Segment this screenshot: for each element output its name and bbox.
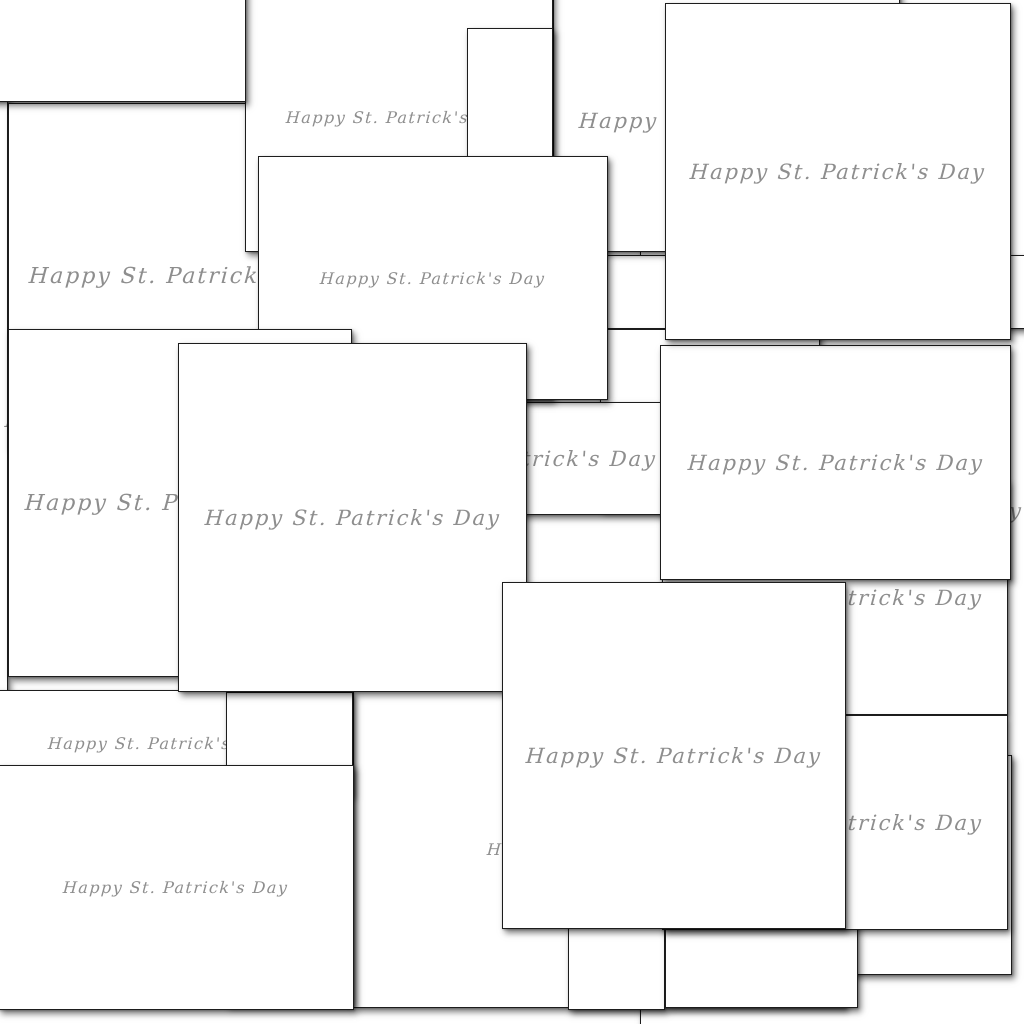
card-greeting-text: Happy St. Patrick's Day	[687, 451, 984, 475]
card-greeting-text: Happy St. Patrick's Day	[689, 160, 986, 184]
card-greeting-text: Happy St. Patrick's Day	[204, 506, 501, 530]
card-greeting-text: Happy St. Patrick's Day	[525, 744, 822, 768]
greeting-card-big-center: Happy St. Patrick's Day	[178, 343, 527, 692]
card-greeting-text: Happy St. Patrick's Day	[0, 408, 8, 432]
greeting-card-bottom-left: Happy St. Patrick's Day	[0, 765, 354, 1010]
greeting-card-bottom-center: Happy St. Patrick's Day	[502, 582, 846, 929]
card-greeting-text: Happy St. Patrick's Day	[320, 269, 547, 288]
greeting-card-filler-left: Happy St. Patrick's Day	[0, 60, 8, 780]
card-collage: Happy St. Patrick's DayHappy St. Patrick…	[0, 0, 1024, 1024]
greeting-card-center-right: Happy St. Patrick's Day	[660, 345, 1011, 580]
greeting-card-top-right: Happy St. Patrick's Day	[665, 3, 1011, 340]
greeting-card-top-left-corner: Happy St. Patrick's Day	[0, 0, 246, 102]
card-greeting-text: Happy St. Patrick's Day	[63, 878, 290, 897]
